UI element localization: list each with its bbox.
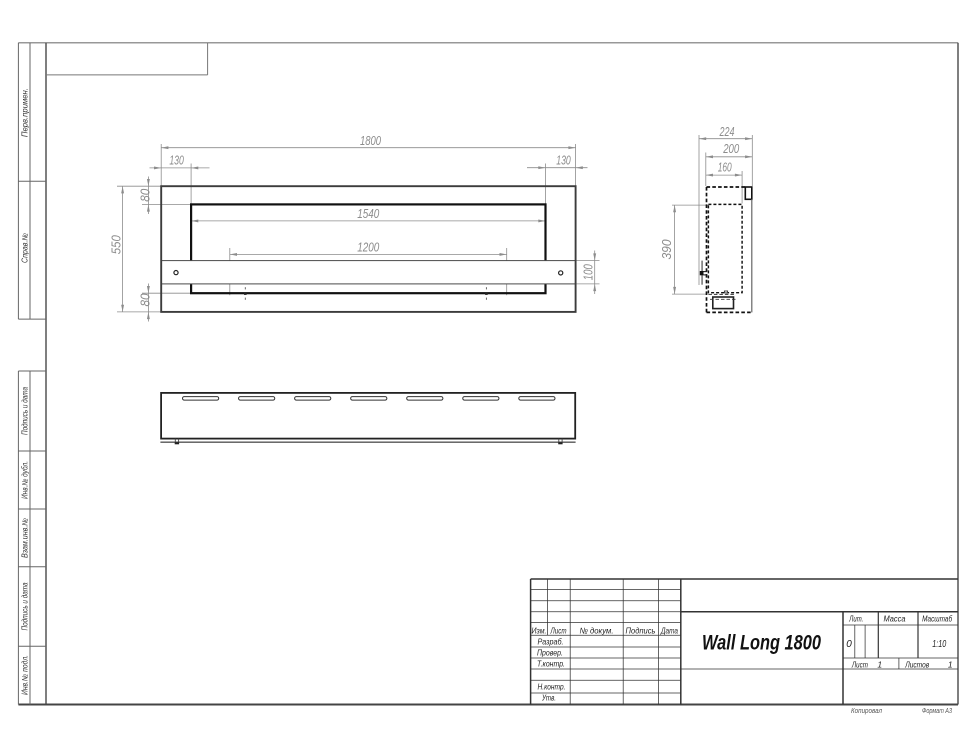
svg-text:Изм.: Изм.: [532, 625, 547, 635]
svg-text:Инв.№ дубл.: Инв.№ дубл.: [21, 461, 30, 499]
svg-text:Лист: Лист: [550, 625, 567, 635]
svg-text:0: 0: [846, 639, 852, 650]
svg-text:Утв.: Утв.: [541, 693, 556, 703]
svg-text:Подпись: Подпись: [626, 625, 656, 635]
svg-text:390: 390: [660, 239, 674, 259]
svg-text:Лист: Лист: [851, 660, 868, 670]
svg-text:Дата: Дата: [660, 625, 678, 635]
svg-text:Масштаб: Масштаб: [922, 613, 952, 623]
svg-text:550: 550: [110, 235, 124, 254]
svg-text:Wall Long 1800: Wall Long 1800: [702, 632, 821, 655]
svg-text:130: 130: [556, 153, 571, 167]
svg-text:Лит.: Лит.: [849, 613, 864, 623]
svg-text:1:10: 1:10: [932, 638, 946, 650]
svg-text:130: 130: [169, 154, 184, 168]
svg-text:1800: 1800: [360, 133, 382, 148]
svg-text:1: 1: [877, 660, 882, 670]
svg-text:1: 1: [948, 660, 953, 670]
svg-text:Взам.инв.№: Взам.инв.№: [21, 518, 30, 558]
svg-text:1200: 1200: [357, 240, 380, 255]
svg-text:Н.контр.: Н.контр.: [538, 682, 566, 692]
svg-text:Разраб.: Разраб.: [538, 637, 564, 647]
svg-text:Подпись и дата: Подпись и дата: [21, 582, 30, 631]
svg-text:200: 200: [722, 142, 739, 156]
svg-text:Листов: Листов: [904, 660, 929, 670]
svg-text:80: 80: [139, 293, 153, 306]
svg-text:Провер.: Провер.: [537, 648, 563, 658]
svg-text:100: 100: [582, 264, 596, 280]
svg-text:Т.контр.: Т.контр.: [537, 658, 565, 668]
svg-text:Формат А3: Формат А3: [922, 706, 953, 715]
svg-text:1540: 1540: [357, 206, 380, 221]
svg-text:Копировал: Копировал: [851, 706, 883, 715]
svg-text:80: 80: [139, 189, 153, 202]
svg-text:Подпись и дата: Подпись и дата: [21, 386, 30, 435]
svg-text:160: 160: [718, 161, 732, 175]
svg-text:224: 224: [719, 125, 735, 139]
svg-text:Перв.примен.: Перв.примен.: [21, 88, 30, 137]
svg-text:Масса: Масса: [884, 613, 906, 623]
svg-text:Инв.№ подл.: Инв.№ подл.: [21, 655, 30, 695]
svg-text:Справ.№: Справ.№: [21, 233, 30, 263]
svg-text:№ докум.: № докум.: [580, 625, 614, 635]
